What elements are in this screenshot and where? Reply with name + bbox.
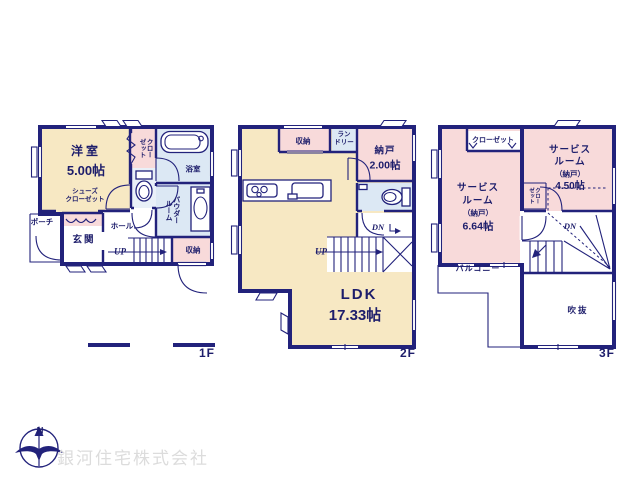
service-room-large-size: 6.64帖 xyxy=(463,221,494,234)
stove-icon xyxy=(247,184,277,197)
stairs-down-label-2f: DN xyxy=(372,222,384,232)
service-room-large-l1: サービス xyxy=(457,182,499,193)
service-room-small-size: 4.50帖 xyxy=(555,181,584,193)
storage-2f-label: 収納 xyxy=(296,137,311,146)
shoes-closet-label: シューズ クローゼット xyxy=(66,188,105,204)
balcony-rail xyxy=(438,265,522,347)
company-watermark: 銀河住宅株式会社 xyxy=(57,444,209,469)
floor1-plan xyxy=(30,121,215,348)
toilet-icon-1f xyxy=(136,171,152,201)
stairs-down-label-3f: DN xyxy=(564,221,576,231)
closet-3f-side-label: クロー ゼット xyxy=(528,188,540,205)
storeroom-2f-label: 納戸 xyxy=(374,145,395,156)
floor3-label: 3F xyxy=(599,346,615,360)
service-room-small-l2: ルーム xyxy=(554,156,585,167)
floor2-label: 2F xyxy=(400,346,416,360)
service-room-large-l2: ルーム xyxy=(462,195,493,206)
closet-1f-label: クロー ゼット xyxy=(138,138,152,158)
compass-north-label: N xyxy=(37,425,44,436)
site-line-left xyxy=(88,343,130,347)
stairs-up-label-2f: UP xyxy=(315,247,327,258)
closet-3f-top-label: クローゼット xyxy=(472,137,514,145)
balcony-label: バルコニー xyxy=(456,264,501,274)
shoe-cabinet xyxy=(64,214,103,226)
western-room-size: 5.00帖 xyxy=(67,163,105,179)
kitchen-counter xyxy=(243,180,331,201)
western-room-label: 洋室 xyxy=(71,144,101,158)
service-room-large-l3: （納戸） xyxy=(463,209,493,218)
hall-label: ホール xyxy=(111,222,134,231)
laundry-label: ラン ドリー xyxy=(334,131,354,147)
ldk-size: 17.33帖 xyxy=(329,307,382,325)
bathtub-icon xyxy=(161,132,208,153)
washbasin-icon xyxy=(191,187,210,231)
ldk-label: LDK xyxy=(341,286,378,304)
floor1-label: 1F xyxy=(199,346,215,360)
floorplan-sheet: 洋室 5.00帖 シューズ クローゼット クロー ゼット 浴室 パウダー ルーム… xyxy=(0,0,640,480)
entrance-label: 玄関 xyxy=(72,234,95,245)
stairs-up-label-1f: UP xyxy=(114,247,126,258)
service-room-small-l3: （納戸） xyxy=(555,170,585,179)
storage-1f-label: 収納 xyxy=(186,246,201,255)
floorplan-drawing xyxy=(0,0,640,480)
storeroom-2f-size: 2.00帖 xyxy=(370,160,401,173)
kitchen-sink-icon xyxy=(288,183,323,199)
bath-label: 浴室 xyxy=(186,165,201,174)
powder-room-label: パウダー ルーム xyxy=(164,196,179,224)
void-label: 吹抜 xyxy=(567,305,588,315)
service-room-small-l1: サービス xyxy=(549,144,591,155)
porch-label: ポーチ xyxy=(31,218,54,227)
